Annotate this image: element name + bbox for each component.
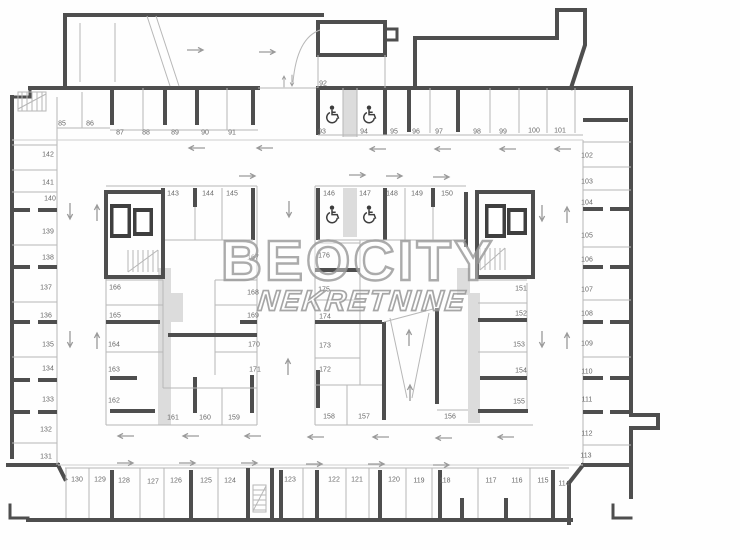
wheelchair-icon <box>327 205 339 222</box>
watermark-line2: NEKRETNINE <box>256 286 468 319</box>
elevator-icon <box>110 204 153 238</box>
wheelchair-icon <box>364 205 376 222</box>
wheelchair-icon <box>364 105 376 122</box>
wheelchair-icon <box>327 105 339 122</box>
ladder-icon <box>253 485 266 512</box>
left-core <box>106 192 163 277</box>
stairs-icon <box>128 250 158 272</box>
floor-plan: 8586878889909192939495969798991001011021… <box>0 0 740 550</box>
stairs-icon <box>18 92 46 111</box>
watermark-line1: BEOCITY <box>221 228 495 294</box>
ramp <box>384 308 437 420</box>
